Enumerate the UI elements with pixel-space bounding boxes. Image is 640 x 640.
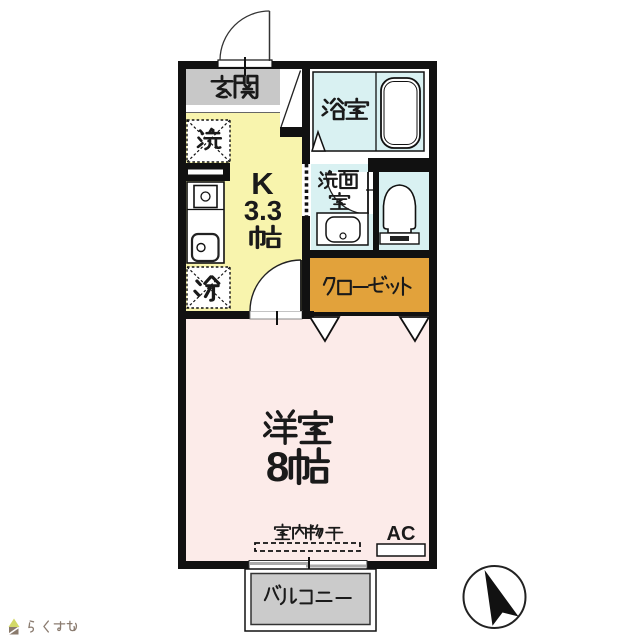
svg-text:AC: AC — [387, 523, 416, 545]
svg-text:8: 8 — [266, 443, 289, 490]
svg-text:3.3: 3.3 — [244, 195, 282, 226]
